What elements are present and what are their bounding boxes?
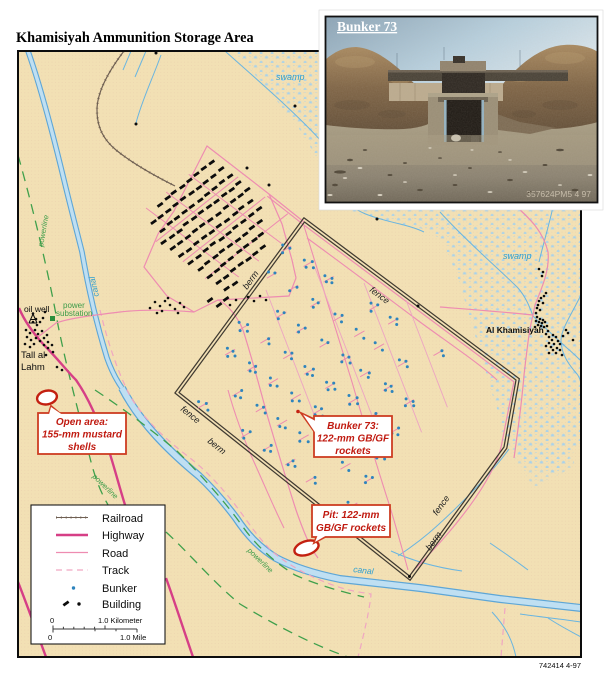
svg-text:Pit: 122-mm: Pit: 122-mm <box>323 510 380 521</box>
svg-text:122-mm GB/GF: 122-mm GB/GF <box>317 434 390 445</box>
svg-text:rockets: rockets <box>335 446 371 457</box>
svg-text:Road: Road <box>102 548 128 560</box>
svg-text:357624PM5 4 97: 357624PM5 4 97 <box>526 189 591 199</box>
svg-text:0: 0 <box>50 616 54 625</box>
svg-text:Open area:: Open area: <box>56 417 108 428</box>
svg-text:swamp: swamp <box>276 72 305 82</box>
svg-text:Railroad: Railroad <box>102 513 143 525</box>
svg-text:742414 4-97: 742414 4-97 <box>539 661 581 670</box>
svg-text:Tall al: Tall al <box>21 350 45 361</box>
svg-text:swamp: swamp <box>503 251 532 261</box>
svg-text:shells: shells <box>68 442 97 453</box>
svg-text:Al Khamisiyah: Al Khamisiyah <box>486 325 544 335</box>
svg-text:Bunker: Bunker <box>102 583 137 595</box>
svg-text:Bunker 73: Bunker 73 <box>337 19 397 34</box>
svg-text:155-mm mustard: 155-mm mustard <box>42 430 123 441</box>
svg-text:Building: Building <box>102 599 141 611</box>
svg-text:oil well: oil well <box>24 304 50 314</box>
svg-text:Highway: Highway <box>102 530 145 542</box>
svg-text:GB/GF rockets: GB/GF rockets <box>316 523 386 534</box>
svg-text:1.0 Kilometer: 1.0 Kilometer <box>98 616 143 625</box>
svg-text:Bunker 73:: Bunker 73: <box>327 421 379 432</box>
svg-text:Lahm: Lahm <box>21 362 45 373</box>
svg-text:Khamisiyah Ammunition Storage: Khamisiyah Ammunition Storage Area <box>16 30 254 46</box>
svg-text:Track: Track <box>102 565 130 577</box>
svg-text:1.0 Mile: 1.0 Mile <box>120 633 146 642</box>
svg-text:substation: substation <box>56 309 92 318</box>
svg-text:0: 0 <box>48 633 52 642</box>
